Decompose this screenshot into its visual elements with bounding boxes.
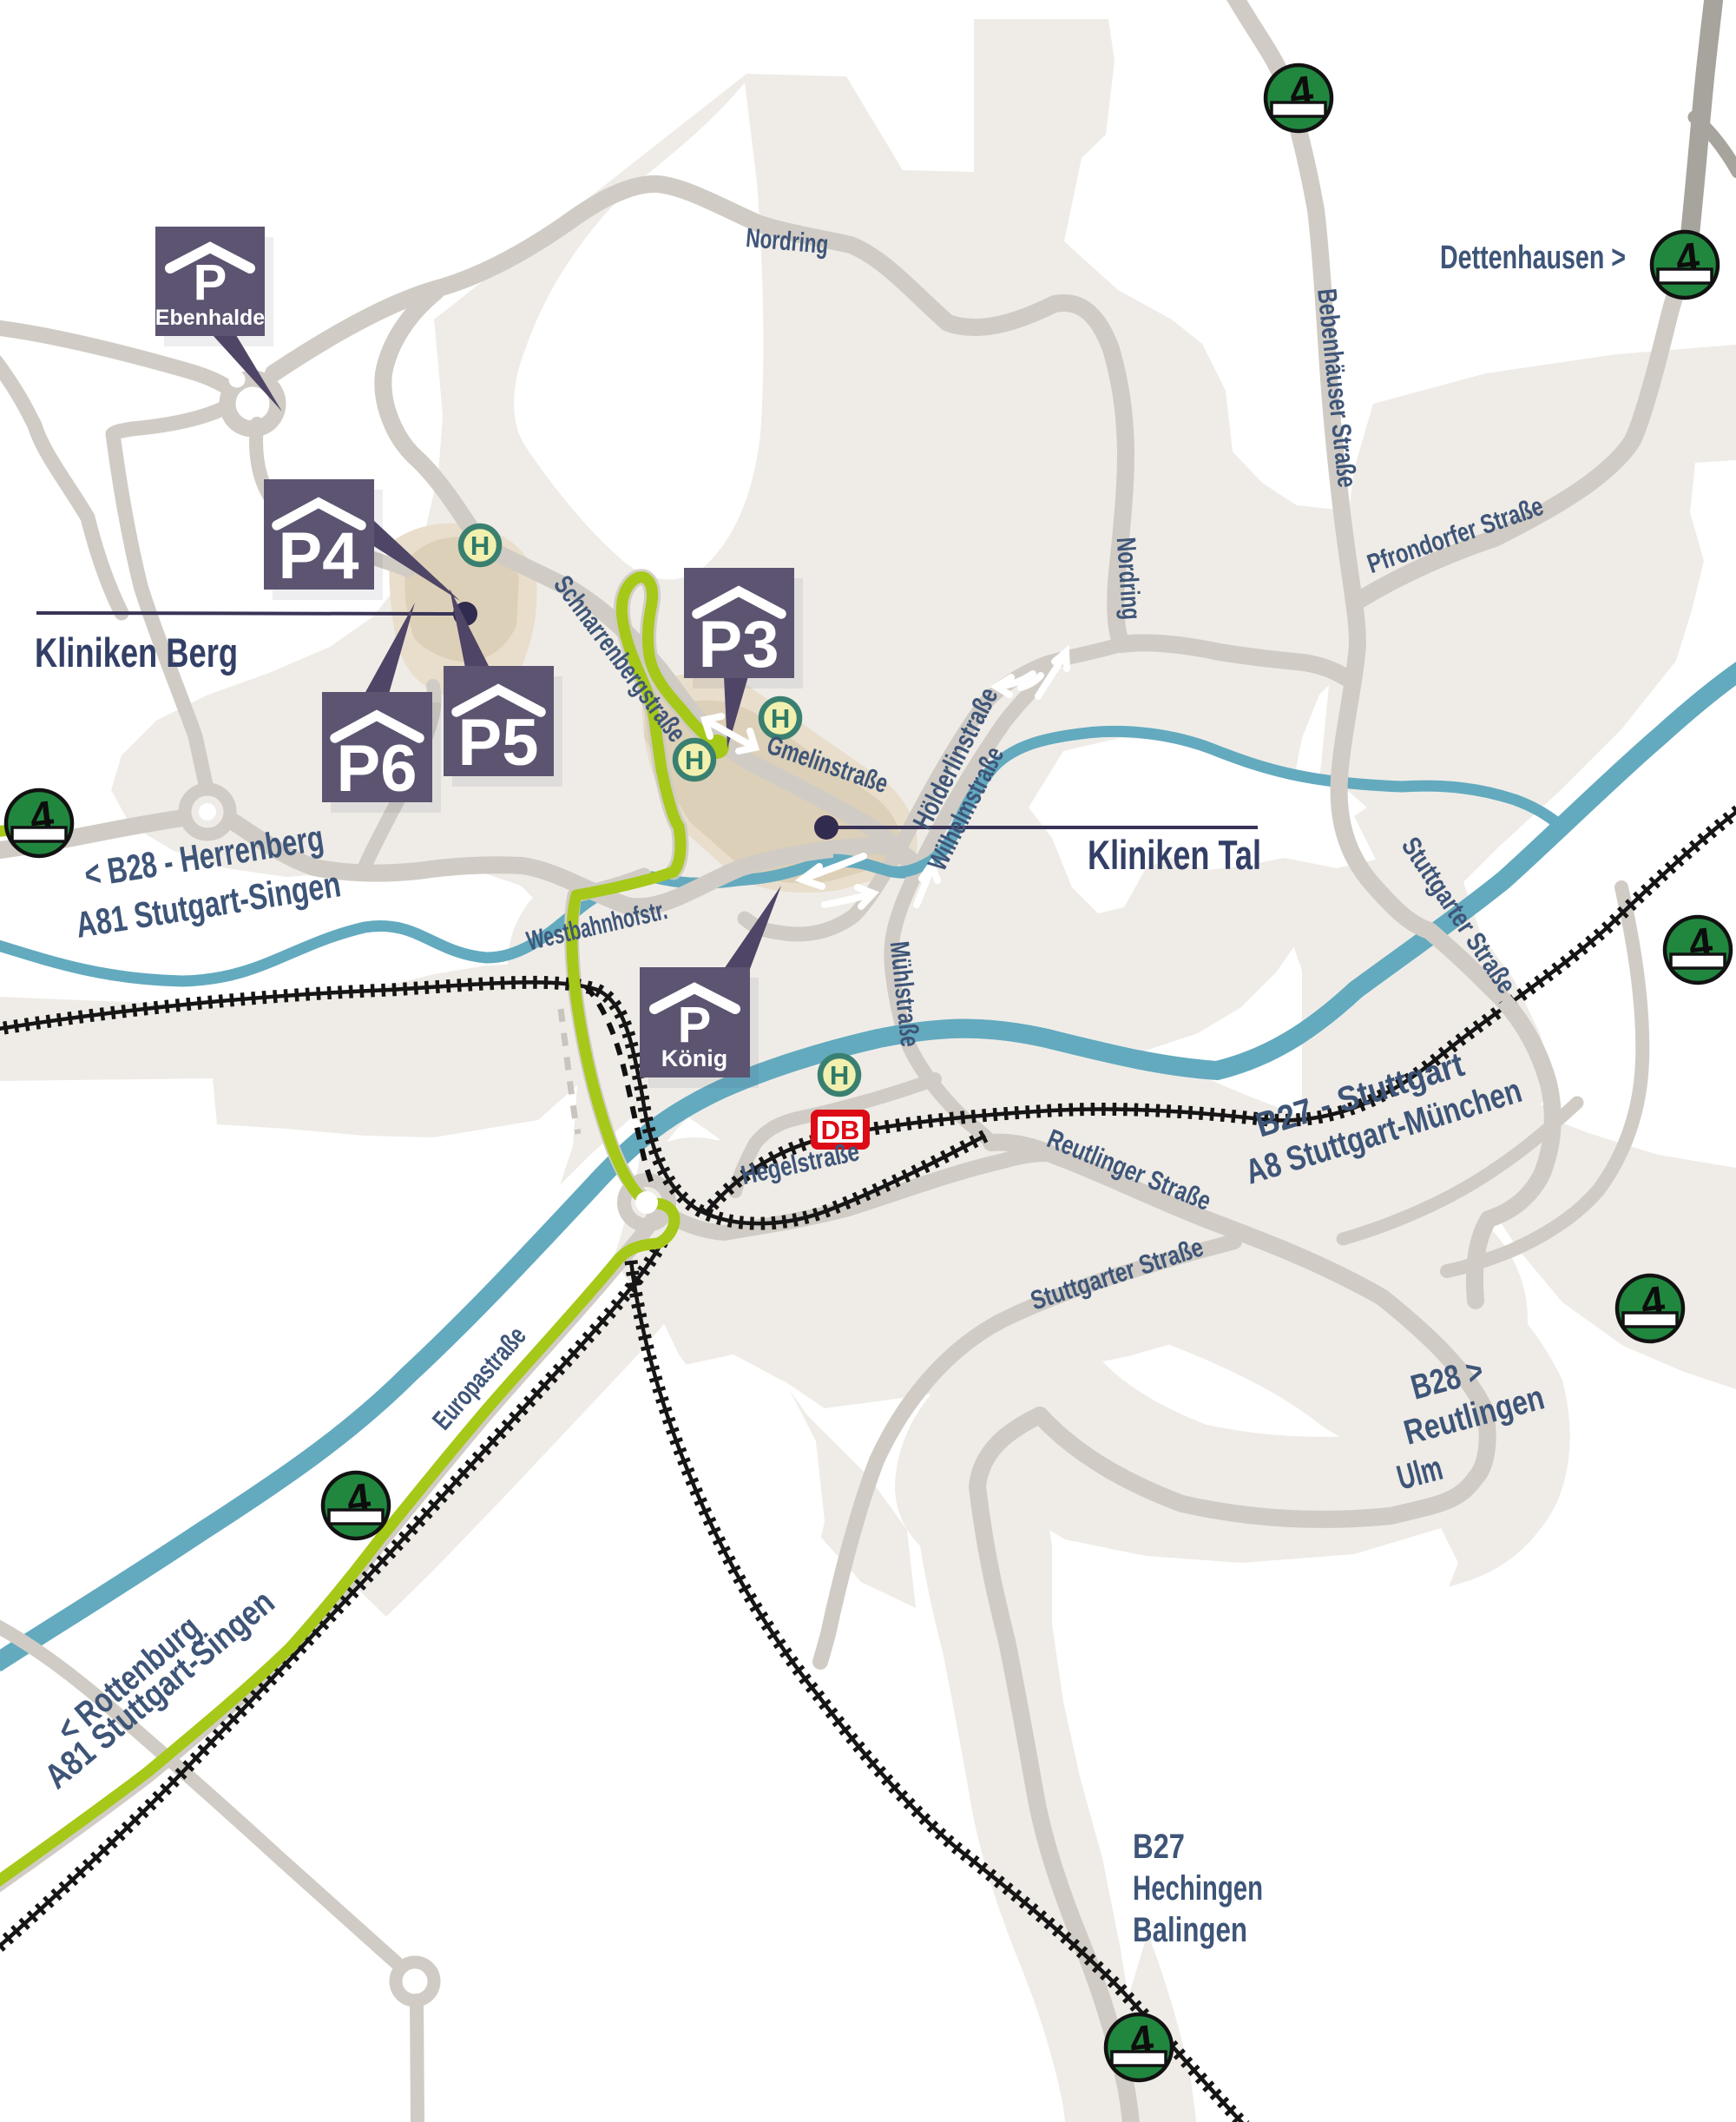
svg-text:Nordring: Nordring xyxy=(1111,537,1147,621)
svg-text:H: H xyxy=(685,745,704,775)
svg-text:P6: P6 xyxy=(337,732,418,806)
svg-text:H: H xyxy=(830,1060,849,1091)
svg-text:Balingen: Balingen xyxy=(1133,1911,1247,1949)
svg-text:P: P xyxy=(194,254,227,311)
svg-text:Kliniken Berg: Kliniken Berg xyxy=(35,629,238,675)
svg-text:Ebenhalde: Ebenhalde xyxy=(155,306,266,330)
svg-text:Dettenhausen >: Dettenhausen > xyxy=(1440,240,1626,276)
svg-text:P3: P3 xyxy=(699,608,779,682)
svg-text:B27: B27 xyxy=(1133,1828,1185,1866)
svg-text:König: König xyxy=(661,1045,727,1071)
svg-text:H: H xyxy=(470,530,490,561)
svg-text:P4: P4 xyxy=(279,519,359,593)
svg-text:P5: P5 xyxy=(458,706,539,780)
svg-text:Kliniken Tal: Kliniken Tal xyxy=(1088,832,1261,878)
svg-text:Hechingen: Hechingen xyxy=(1133,1869,1263,1908)
